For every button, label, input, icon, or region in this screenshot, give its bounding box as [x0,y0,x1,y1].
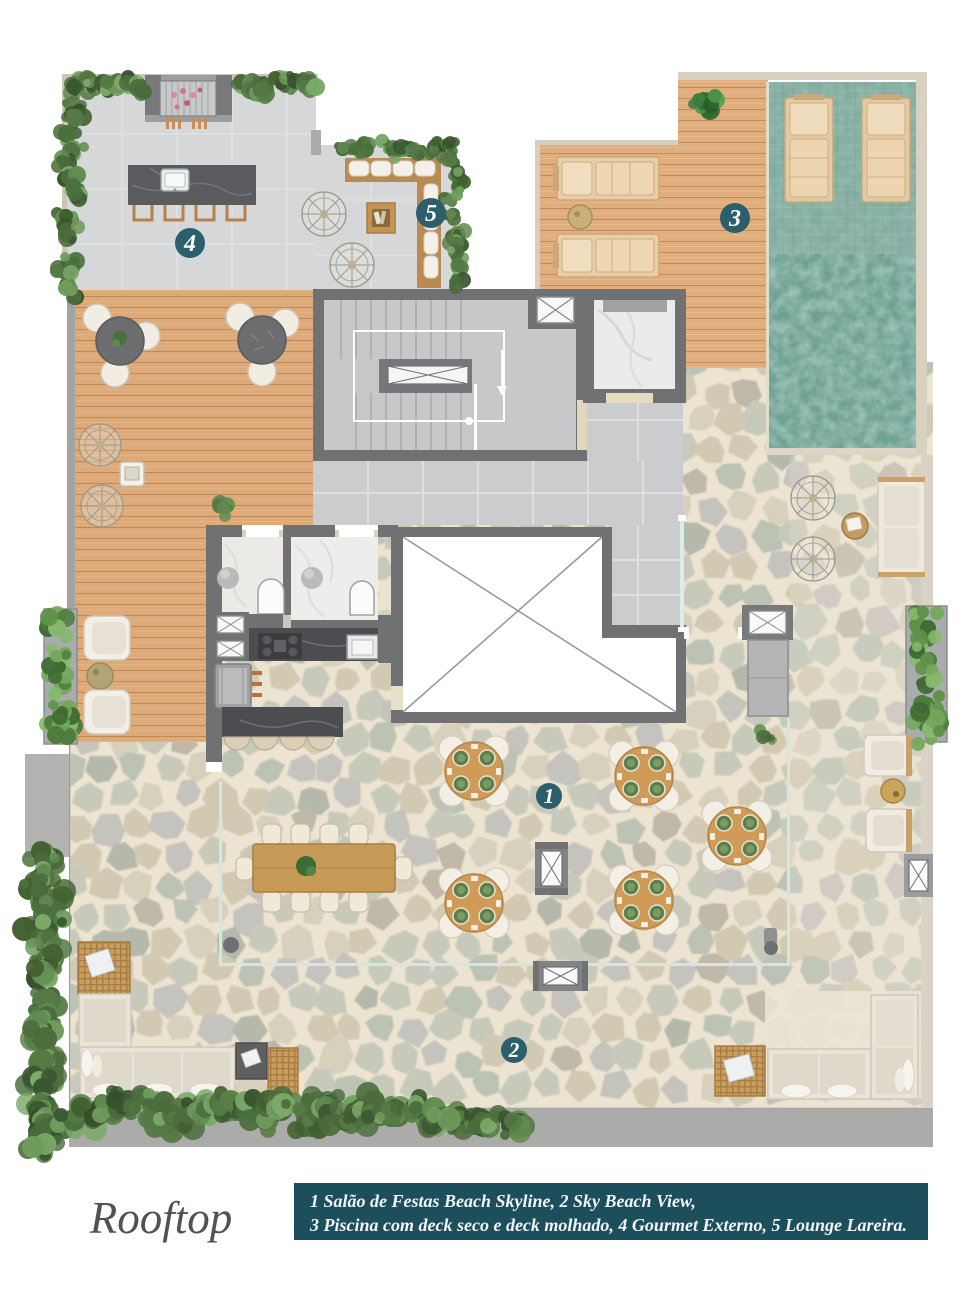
svg-text:Rooftop: Rooftop [89,1193,233,1243]
svg-text:1 Salão de Festas Beach Skylin: 1 Salão de Festas Beach Skyline, 2 Sky B… [310,1191,696,1211]
svg-text:5: 5 [425,201,437,227]
svg-text:4: 4 [183,231,196,257]
svg-text:3: 3 [728,206,741,232]
svg-text:2: 2 [508,1038,520,1062]
svg-text:1: 1 [544,784,555,808]
svg-text:3 Piscina com deck seco e deck: 3 Piscina com deck seco e deck molhado, … [309,1215,907,1235]
